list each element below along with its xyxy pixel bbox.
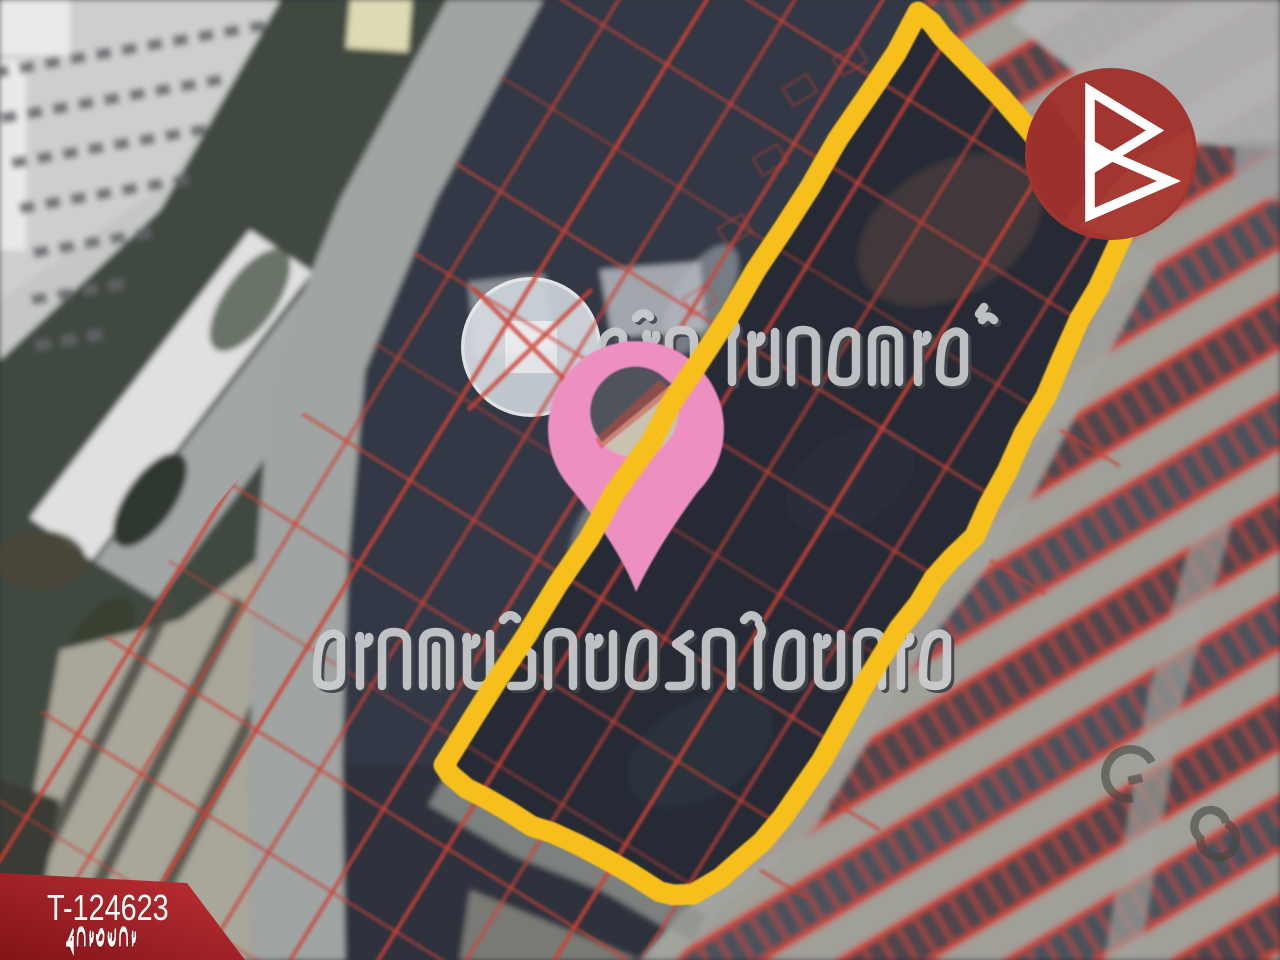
svg-text:T-124623: T-124623 bbox=[47, 887, 169, 928]
